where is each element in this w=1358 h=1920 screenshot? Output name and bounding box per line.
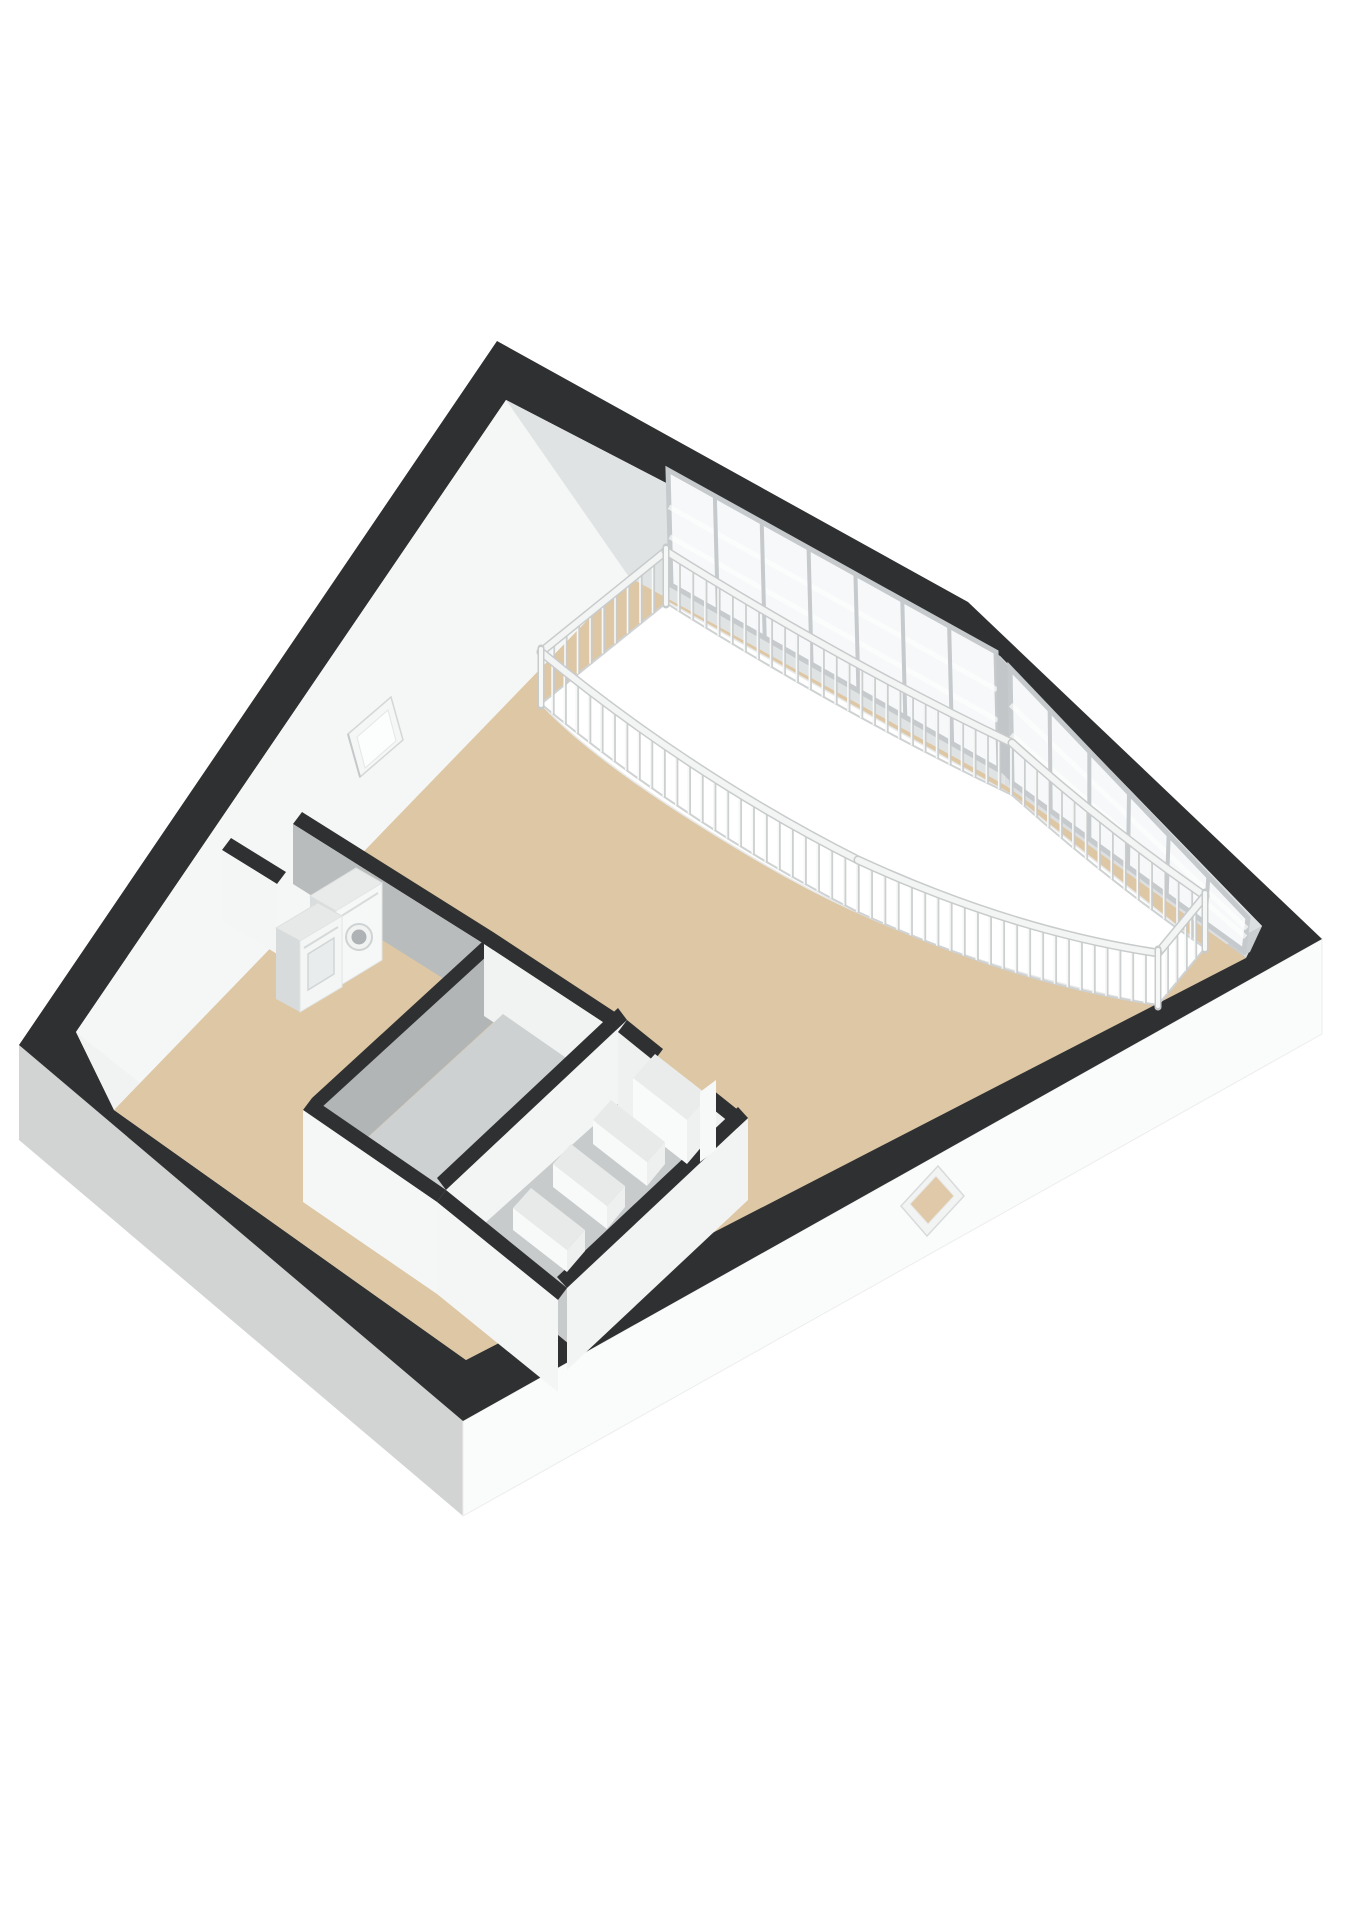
floorplan-page (0, 0, 1358, 1920)
dryer-side (276, 928, 300, 1012)
window-band-segment2-mullion-3 (1128, 793, 1129, 867)
stair-door-jamb (700, 1080, 716, 1162)
floorplan-3d[interactable] (0, 0, 1358, 1920)
washer-door-glass (352, 930, 367, 945)
